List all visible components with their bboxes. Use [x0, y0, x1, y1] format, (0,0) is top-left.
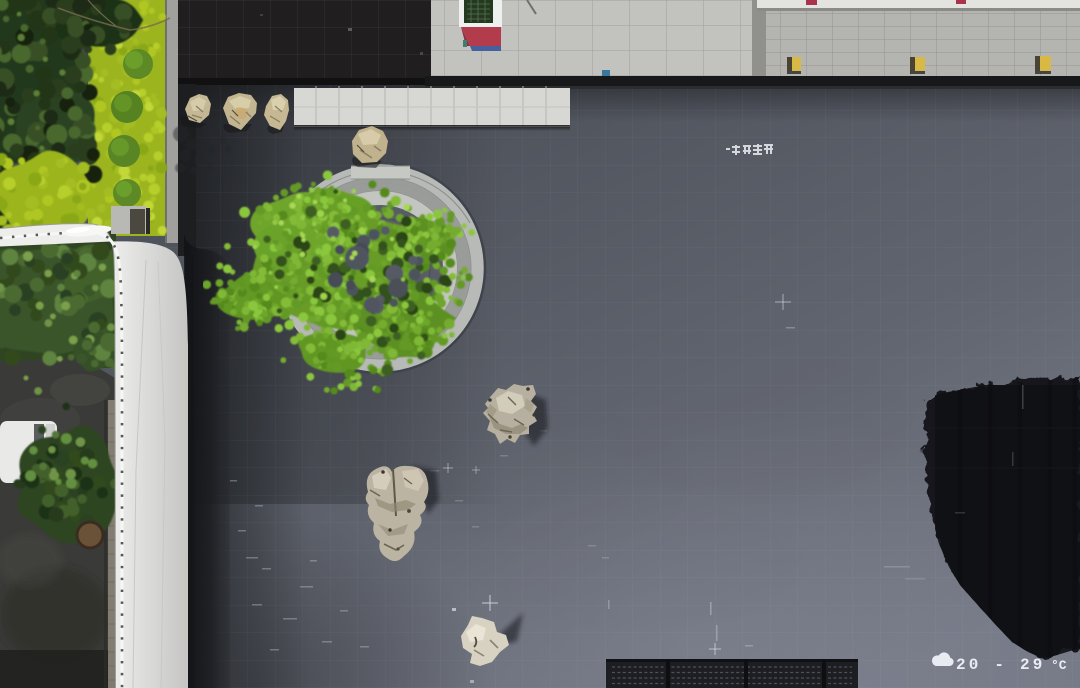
svg-text:°C: °C [1051, 658, 1067, 673]
svg-text:20 - 29: 20 - 29 [956, 656, 1046, 674]
